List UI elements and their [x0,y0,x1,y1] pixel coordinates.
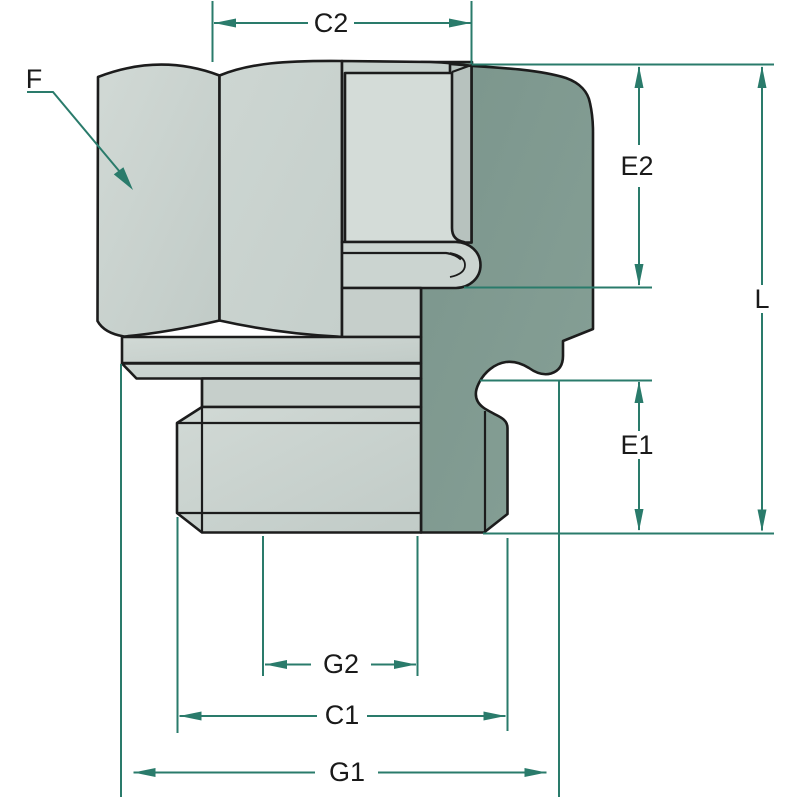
l-arrow-down [758,510,767,532]
hex-facet-middle [220,61,343,337]
g2-arrow-right [394,660,416,669]
dim-label-g1: G1 [329,757,365,787]
g2-arrow-left [265,660,287,669]
g1-arrow-left [134,768,156,777]
nut-skirt-panel [342,288,421,337]
e2-arrow-down [635,264,644,286]
flange-washer-lower [122,364,421,379]
seal-lip-band [342,242,481,288]
fitting-dimension-diagram: C2 F E2 L E1 [0,0,800,800]
dim-label-c2: C2 [314,8,349,38]
nut-bore-window [345,73,464,242]
dim-label-e1: E1 [620,430,653,460]
dim-e2: E2 [620,66,653,286]
technical-drawing-page: C2 F E2 L E1 [0,0,800,800]
hex-facet-left [98,65,220,337]
dim-label-e2: E2 [620,151,653,181]
dim-l: L [754,66,769,532]
dim-e1: E1 [620,381,653,531]
c2-arrow-left [214,19,236,28]
e2-arrow-up [635,66,644,88]
e1-arrow-down [635,509,644,531]
dim-label-g2: G2 [323,649,359,679]
dim-c2: C2 [214,8,471,38]
c1-arrow-right [484,712,506,721]
dim-label-l: L [754,284,769,314]
c1-arrow-left [180,712,202,721]
dim-c1: C1 [180,700,506,730]
l-arrow-up [758,66,767,88]
g1-arrow-right [525,768,547,777]
flange-washer-upper [122,337,421,363]
c2-arrow-right [449,19,471,28]
dim-g2: G2 [265,649,416,679]
dim-g1: G1 [134,757,547,787]
dim-label-c1: C1 [325,700,360,730]
neck [202,379,421,408]
dim-label-f: F [26,64,43,94]
e1-arrow-up [635,381,644,403]
